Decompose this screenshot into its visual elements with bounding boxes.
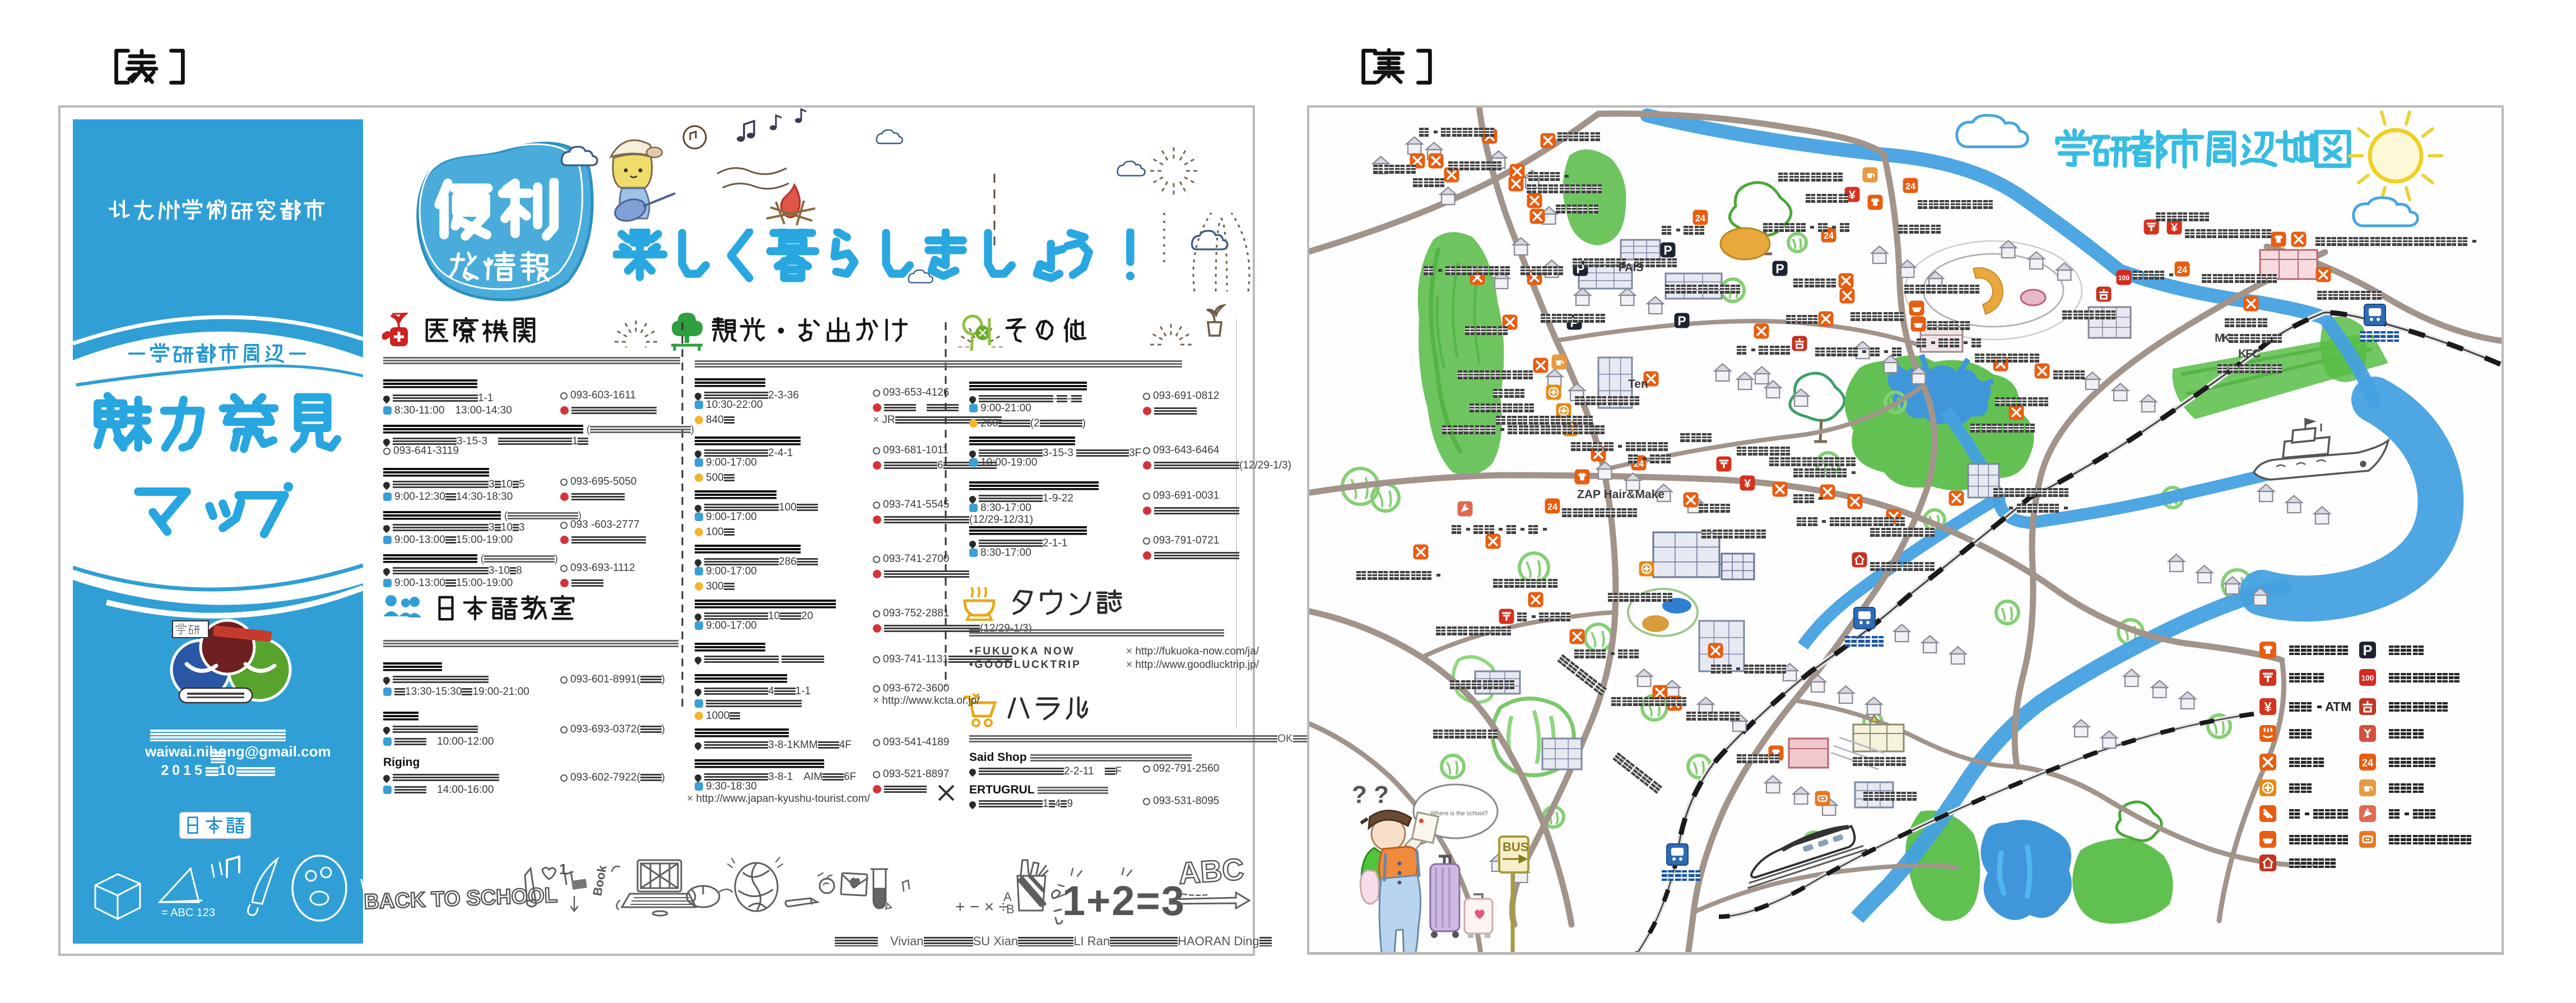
svg-text:¥: ¥ bbox=[2264, 700, 2272, 715]
svg-text:BACK TO SCHOOL: BACK TO SCHOOL bbox=[364, 884, 558, 914]
svg-text:100: 100 bbox=[2361, 674, 2374, 682]
svg-text:ZAP Hair&Make: ZAP Hair&Make bbox=[1577, 488, 1664, 501]
svg-text:? ?: ? ? bbox=[1352, 781, 1389, 809]
svg-text:100: 100 bbox=[2118, 274, 2130, 282]
svg-text:Book: Book bbox=[590, 864, 609, 897]
svg-text:24: 24 bbox=[1695, 213, 1705, 224]
svg-text:Ten: Ten bbox=[1628, 378, 1648, 391]
svg-text:¥: ¥ bbox=[1744, 476, 1751, 490]
svg-text:1: 1 bbox=[559, 861, 567, 877]
svg-text:M: M bbox=[2341, 699, 2351, 714]
svg-text:P: P bbox=[1775, 262, 1784, 276]
svg-text:24: 24 bbox=[1905, 182, 1915, 192]
svg-text:FAIS: FAIS bbox=[1619, 262, 1643, 274]
svg-text:P: P bbox=[2363, 643, 2372, 659]
svg-text:24: 24 bbox=[1824, 231, 1834, 241]
svg-text:¥: ¥ bbox=[2171, 220, 2178, 234]
svg-text:24: 24 bbox=[1547, 502, 1557, 512]
svg-text:= ABC 123: = ABC 123 bbox=[161, 907, 215, 919]
svg-text:BUS: BUS bbox=[1503, 840, 1528, 854]
svg-text:¥: ¥ bbox=[1849, 188, 1856, 202]
svg-text:1+2=3: 1+2=3 bbox=[1062, 877, 1185, 924]
svg-text:B: B bbox=[1006, 902, 1015, 916]
svg-text:P: P bbox=[1663, 243, 1672, 258]
svg-text:T: T bbox=[2333, 699, 2341, 714]
svg-text:ABC: ABC bbox=[1177, 852, 1245, 890]
svg-text:+ − × ÷: + − × ÷ bbox=[955, 898, 1008, 916]
svg-text:24: 24 bbox=[2177, 265, 2187, 275]
svg-text:C: C bbox=[2252, 347, 2261, 360]
svg-text:P: P bbox=[1677, 314, 1686, 328]
svg-text:24: 24 bbox=[2362, 758, 2373, 769]
